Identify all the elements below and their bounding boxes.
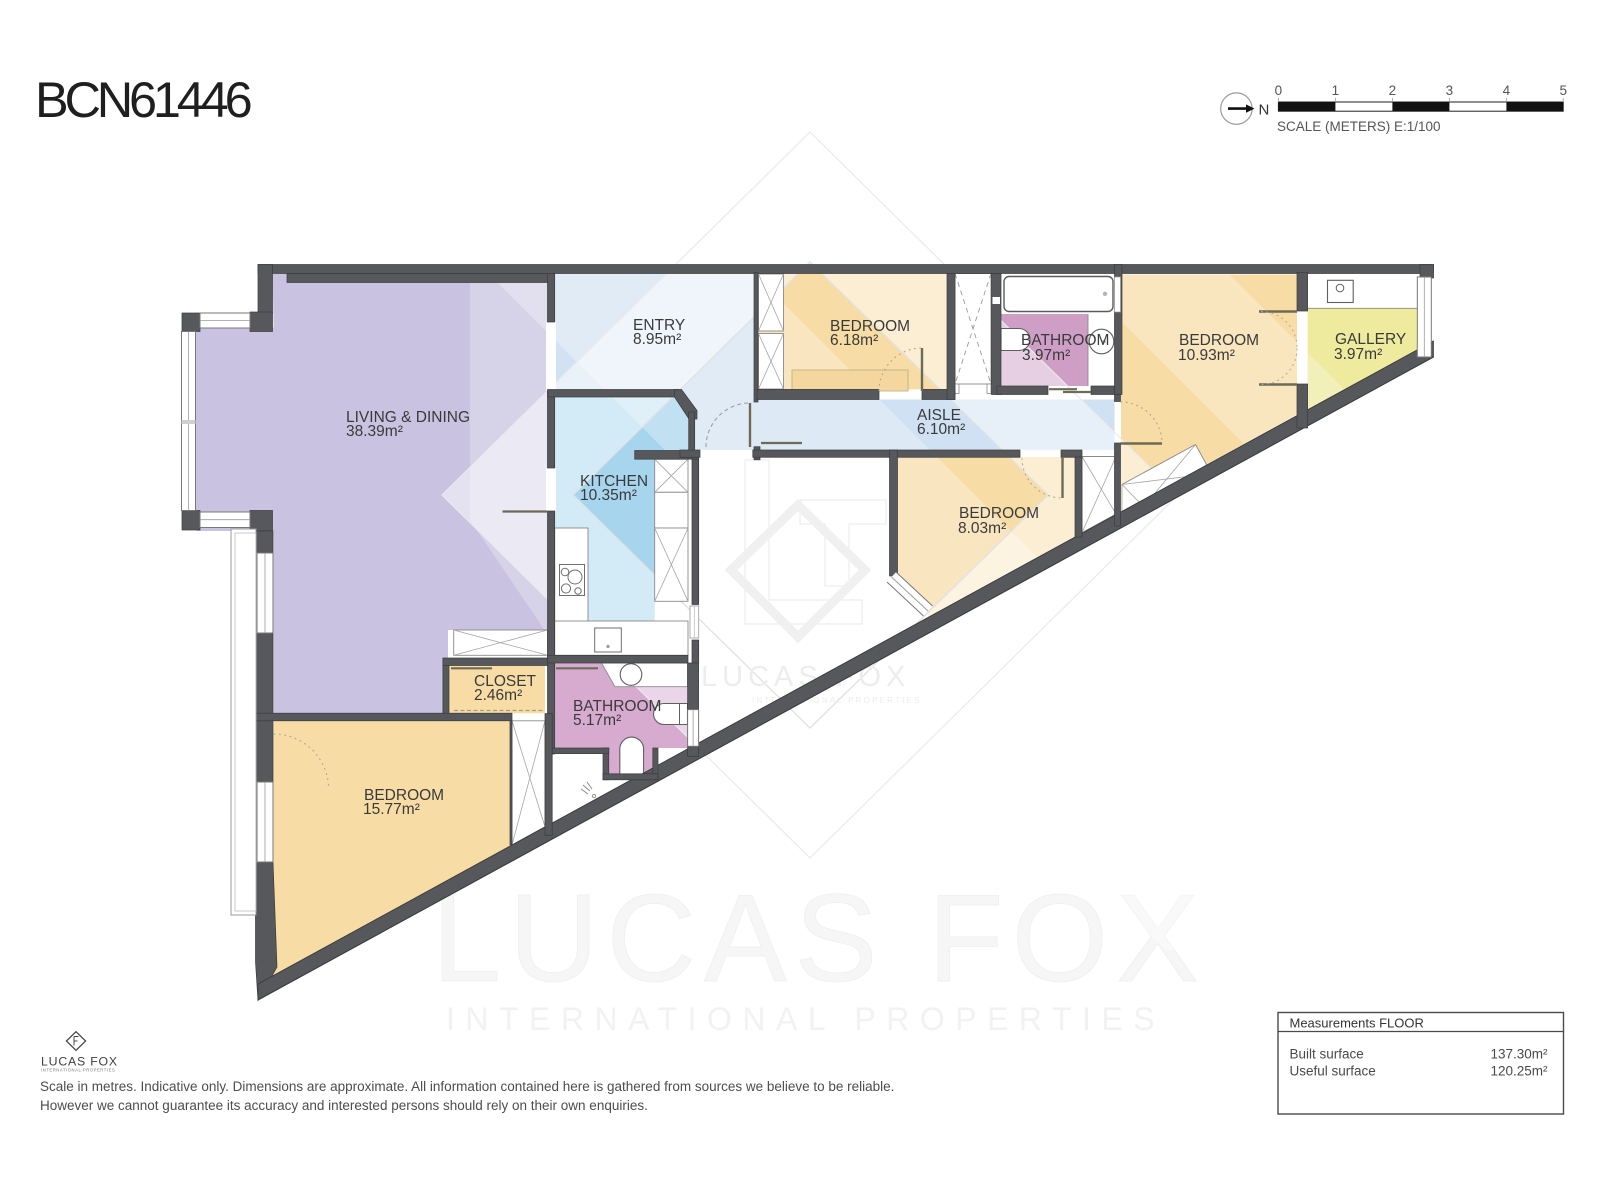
svg-text:LUCAS FOX: LUCAS FOX: [432, 870, 1207, 1008]
svg-text:INTERNATIONAL PROPERTIES: INTERNATIONAL PROPERTIES: [41, 1068, 115, 1073]
svg-text:0: 0: [1275, 83, 1283, 98]
svg-text:Scale in metres. Indicative on: Scale in metres. Indicative only. Dimens…: [40, 1079, 894, 1094]
svg-text:BCN61446: BCN61446: [35, 71, 251, 128]
svg-text:6.10m²: 6.10m²: [917, 421, 965, 438]
svg-text:3: 3: [1446, 83, 1454, 98]
svg-text:5: 5: [1559, 83, 1567, 98]
svg-text:Built surface: Built surface: [1290, 1047, 1364, 1062]
svg-text:6.18m²: 6.18m²: [830, 332, 878, 349]
svg-text:120.25m²: 120.25m²: [1490, 1064, 1548, 1079]
svg-text:38.39m²: 38.39m²: [346, 423, 403, 440]
svg-text:SCALE (METERS) E:1/100: SCALE (METERS) E:1/100: [1277, 119, 1441, 134]
svg-text:However we cannot guarantee it: However we cannot guarantee its accuracy…: [40, 1098, 648, 1113]
svg-text:15.77m²: 15.77m²: [363, 801, 420, 818]
svg-text:137.30m²: 137.30m²: [1490, 1047, 1548, 1062]
svg-text:10.35m²: 10.35m²: [580, 487, 637, 504]
svg-text:8.95m²: 8.95m²: [633, 331, 681, 348]
svg-text:8.03m²: 8.03m²: [958, 520, 1006, 537]
svg-text:3.97m²: 3.97m²: [1022, 347, 1070, 364]
svg-text:5.17m²: 5.17m²: [573, 712, 621, 729]
svg-text:N: N: [1259, 102, 1270, 119]
svg-text:3.97m²: 3.97m²: [1334, 346, 1382, 363]
svg-text:Useful surface: Useful surface: [1290, 1064, 1376, 1079]
svg-text:10.93m²: 10.93m²: [1178, 347, 1235, 364]
svg-text:4: 4: [1503, 83, 1511, 98]
svg-text:Measurements FLOOR: Measurements FLOOR: [1290, 1016, 1424, 1031]
svg-text:2.46m²: 2.46m²: [474, 687, 522, 704]
svg-text:INTERNATIONAL PROPERTIES: INTERNATIONAL PROPERTIES: [446, 1001, 1165, 1037]
svg-text:2: 2: [1389, 83, 1397, 98]
svg-text:LUCAS FOX: LUCAS FOX: [41, 1055, 118, 1069]
svg-text:1: 1: [1332, 83, 1340, 98]
